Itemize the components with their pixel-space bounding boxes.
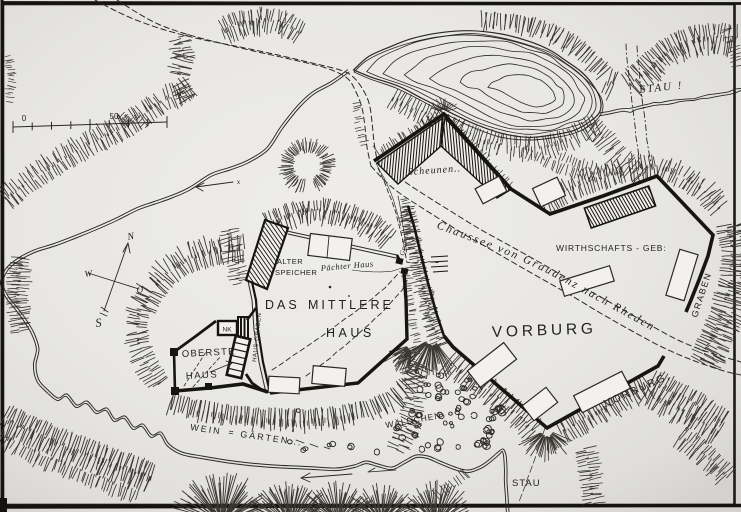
svg-text:MITTLERE: MITTLERE [308,298,394,312]
svg-text:NK: NK [223,327,233,334]
svg-text:x: x [237,180,240,186]
svg-text:50: 50 [110,112,119,121]
svg-text:0: 0 [22,114,27,123]
svg-text:ALTER: ALTER [277,257,303,266]
svg-text:STAU: STAU [512,478,541,489]
svg-text:WIRTHSCHAFTS - GEB:: WIRTHSCHAFTS - GEB: [556,243,666,253]
svg-text:DAS: DAS [265,298,300,312]
svg-text:HAUS: HAUS [186,369,219,382]
svg-text:HAUS: HAUS [326,326,375,340]
svg-text:SPEICHER: SPEICHER [275,268,317,277]
